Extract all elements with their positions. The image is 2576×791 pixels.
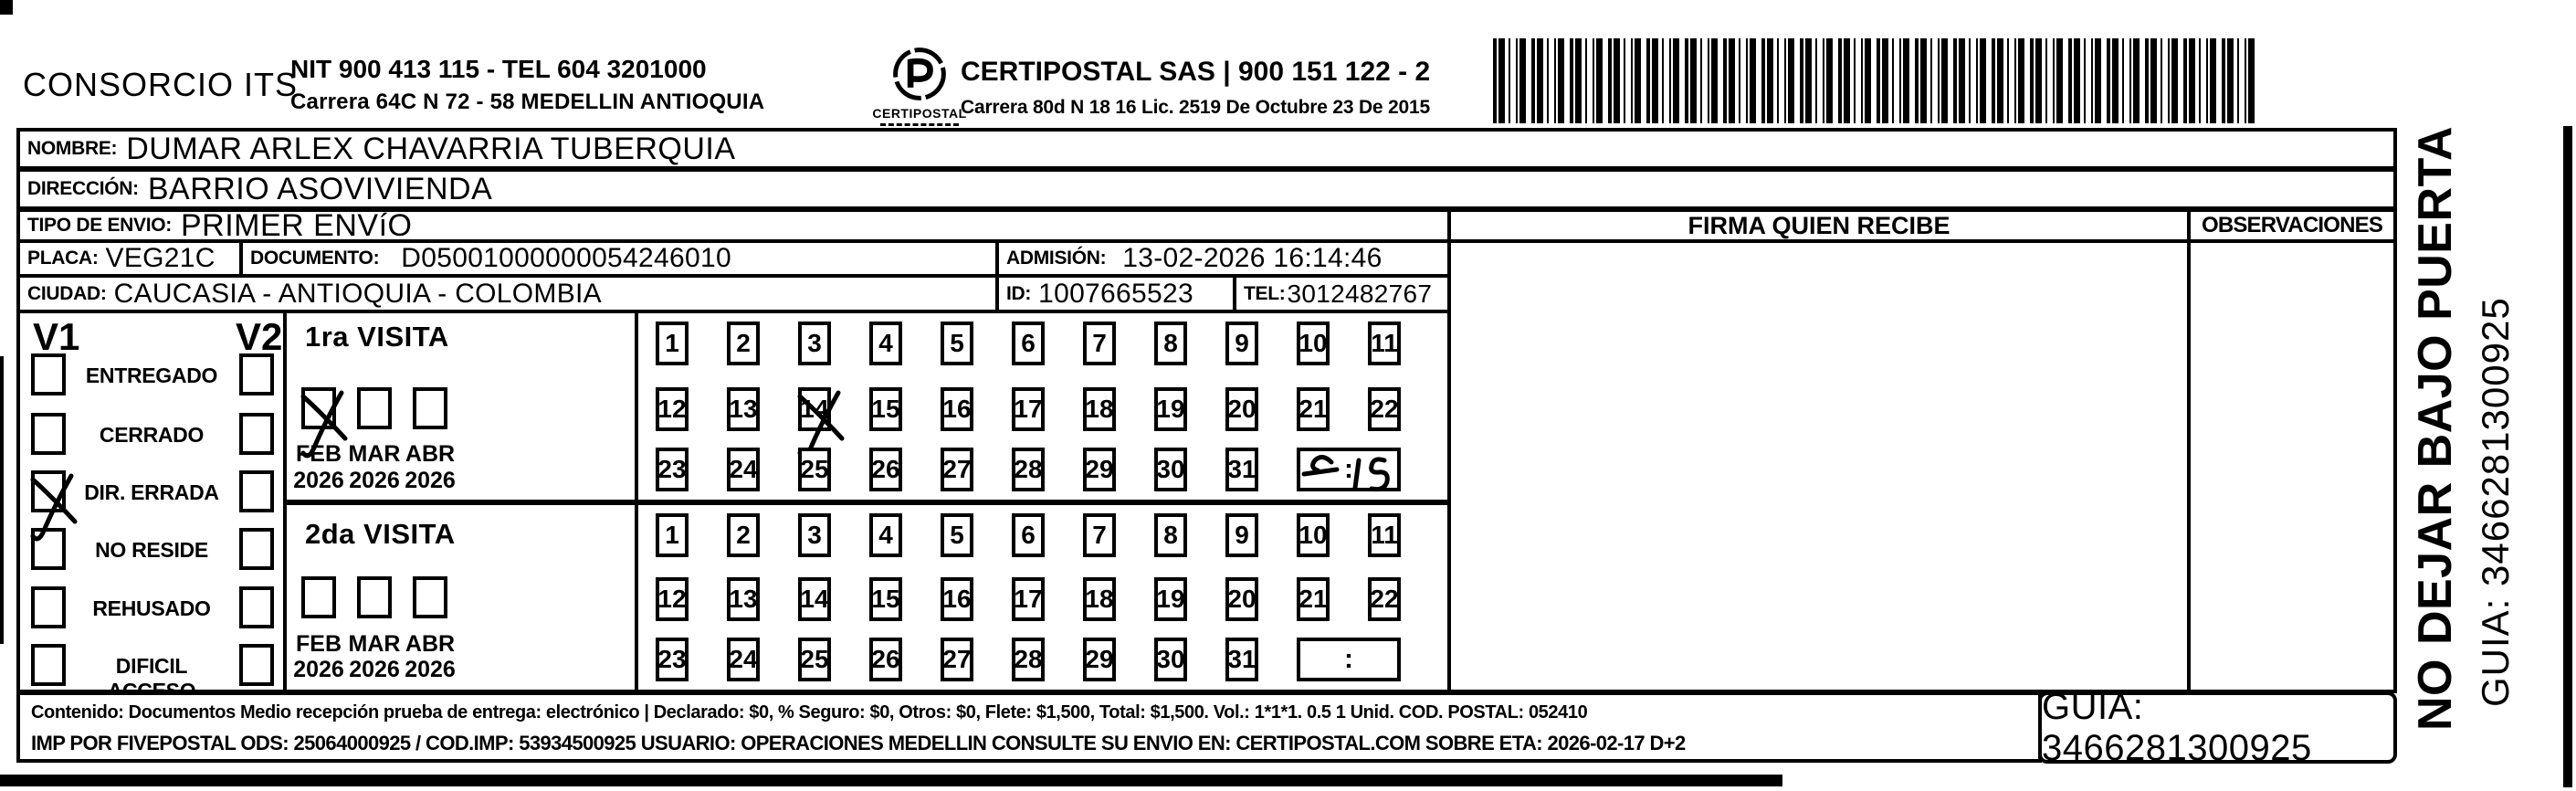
documento-label: DOCUMENTO: <box>250 248 379 269</box>
day-box-11: 11 <box>1368 322 1401 365</box>
month-checkbox-mar-2026 <box>357 387 392 429</box>
month-label: MAR <box>345 441 404 468</box>
day-box-13: 13 <box>727 577 760 621</box>
month-label: FEB <box>289 441 348 468</box>
status-label-cerrado: CERRADO <box>71 423 232 448</box>
logo-underline <box>880 123 959 126</box>
footer-imp-line: IMP POR FIVEPOSTAL ODS: 25064000925 / CO… <box>31 732 1686 755</box>
day-box-28: 28 <box>1012 448 1045 491</box>
v2-checkbox-dir-errada <box>239 470 274 512</box>
v1-checkbox-dificil-acceso <box>31 644 66 686</box>
handwritten-time <box>1300 451 1404 495</box>
day-box-27: 27 <box>941 448 973 491</box>
day-box-4: 4 <box>869 513 902 557</box>
status-label-entregado: ENTREGADO <box>71 364 232 388</box>
day-box-8: 8 <box>1154 322 1187 365</box>
day-box-31: 31 <box>1225 638 1258 681</box>
side-guia-text: GUIA: 3466281300925 <box>2467 137 2524 731</box>
certipostal-license-line: Carrera 80d N 18 16 Lic. 2519 De Octubre… <box>961 97 1430 119</box>
consorcio-nit-line: NIT 900 413 115 - TEL 604 3201000 <box>290 55 707 84</box>
month-checkbox-abr-2026 <box>413 576 447 618</box>
time-box: : <box>1297 638 1401 681</box>
day-box-21: 21 <box>1297 387 1330 431</box>
day-box-24: 24 <box>727 448 760 491</box>
visit-title: 1ra VISITA <box>305 321 449 353</box>
day-box-31: 31 <box>1225 448 1258 491</box>
certipostal-name-line: CERTIPOSTAL SAS | 900 151 122 - 2 <box>961 57 1430 88</box>
cell-tel: TEL: 3012482767 <box>1233 274 1451 313</box>
brand-name: CONSORCIO ITS <box>23 66 298 104</box>
no-dejar-bajo-puerta-text: NO DEJAR BAJO PUERTA <box>2403 137 2467 731</box>
day-box-2: 2 <box>727 322 760 365</box>
v2-column-header: V2 <box>236 315 282 359</box>
scan-artifact-right-bar <box>2563 126 2572 787</box>
day-box-20: 20 <box>1225 577 1258 621</box>
guia-number-box: GUIA: 3466281300925 <box>2038 691 2397 764</box>
delivery-slip-scan: CONSORCIO ITS NIT 900 413 115 - TEL 604 … <box>0 0 2576 791</box>
firma-signature-area <box>1447 239 2191 693</box>
month-label: MAR <box>345 631 404 658</box>
calendar-row: 1213141516171819202122 <box>656 387 1401 431</box>
firma-quien-recibe-header: FIRMA QUIEN RECIBE <box>1447 208 2191 243</box>
day-box-1: 1 <box>656 513 689 557</box>
observaciones-area <box>2187 239 2397 693</box>
day-box-15: 15 <box>869 577 902 621</box>
day-box-17: 17 <box>1012 387 1045 431</box>
calendar-row: 1234567891011 <box>656 322 1401 365</box>
direccion-value: BARRIO ASOVIVIENDA <box>148 172 492 207</box>
month-checkbox-mar-2026 <box>357 576 392 618</box>
day-box-5: 5 <box>941 513 973 557</box>
row-nombre: NOMBRE: DUMAR ARLEX CHAVARRIA TUBERQUIA <box>16 128 2397 170</box>
year-label: 2026 <box>345 657 404 683</box>
barcode-icon <box>1493 38 2255 123</box>
day-box-25: 25 <box>798 638 831 681</box>
day-box-13: 13 <box>727 387 760 431</box>
side-rotated-text: NO DEJAR BAJO PUERTA GUIA: 3466281300925 <box>2403 137 2550 731</box>
year-label: 2026 <box>401 468 459 494</box>
day-box-15: 15 <box>869 387 902 431</box>
day-box-10: 10 <box>1297 322 1330 365</box>
v2-checkbox-dificil-acceso <box>239 644 274 686</box>
cell-id: ID: 1007665523 <box>995 274 1236 313</box>
year-label: 2026 <box>289 657 348 683</box>
day-box-2: 2 <box>727 513 760 557</box>
day-box-12: 12 <box>656 577 689 621</box>
day-box-19: 19 <box>1154 387 1187 431</box>
v1-column-header: V1 <box>33 315 79 359</box>
visit-status-box: V1 V2 ENTREGADOCERRADODIR. ERRADANO RESI… <box>16 310 287 693</box>
month-label: FEB <box>289 631 348 658</box>
second-visit-box: 2da VISITA FEB2026MAR2026ABR2026 <box>283 501 638 693</box>
direccion-label: DIRECCIÓN: <box>27 178 139 200</box>
v1-checkbox-no-reside <box>31 528 66 570</box>
day-box-3: 3 <box>798 322 831 365</box>
ciudad-value: CAUCASIA - ANTIOQUIA - COLOMBIA <box>114 279 602 310</box>
id-value: 1007665523 <box>1038 279 1193 310</box>
footer-content-cell: Contenido: Documentos Medio recepción pr… <box>16 691 2042 763</box>
day-box-30: 30 <box>1154 448 1187 491</box>
ciudad-label: CIUDAD: <box>27 283 107 305</box>
status-label-dir-errada: DIR. ERRADA <box>71 480 232 505</box>
observaciones-header: OBSERVACIONES <box>2187 208 2397 243</box>
tipo-envio-label: TIPO DE ENVIO: <box>27 215 172 237</box>
year-label: 2026 <box>401 657 459 683</box>
calendar-row: 232425262728293031: <box>656 448 1401 491</box>
day-box-26: 26 <box>869 638 902 681</box>
footer-contenido-line: Contenido: Documentos Medio recepción pr… <box>31 702 1587 723</box>
logo-caption: CERTIPOSTAL <box>869 106 970 121</box>
day-box-1: 1 <box>656 322 689 365</box>
day-box-28: 28 <box>1012 638 1045 681</box>
v1-checkbox-cerrado <box>31 413 66 455</box>
cell-ciudad: CIUDAD: CAUCASIA - ANTIOQUIA - COLOMBIA <box>16 274 999 313</box>
day-box-7: 7 <box>1083 513 1116 557</box>
tel-value: 3012482767 <box>1287 279 1432 309</box>
day-box-29: 29 <box>1083 638 1116 681</box>
row-tipo-envio: TIPO DE ENVIO: PRIMER ENVíO <box>16 208 1451 243</box>
admision-value: 13-02-2026 16:14:46 <box>1122 243 1382 274</box>
documento-value: D05001000000054246010 <box>401 243 731 274</box>
day-box-6: 6 <box>1012 322 1045 365</box>
day-box-14: 14 <box>798 387 831 431</box>
id-label: ID: <box>1006 283 1031 305</box>
v2-checkbox-entregado <box>239 353 274 395</box>
v1-checkbox-dir-errada <box>31 470 66 512</box>
day-box-5: 5 <box>941 322 973 365</box>
year-label: 2026 <box>345 468 404 494</box>
v1-checkbox-rehusado <box>31 586 66 628</box>
day-box-11: 11 <box>1368 513 1401 557</box>
day-box-6: 6 <box>1012 513 1045 557</box>
first-visit-box: 1ra VISITA FEB2026MAR2026ABR2026 <box>283 310 638 503</box>
time-colon: : <box>1344 644 1353 675</box>
certipostal-logo-icon <box>887 44 952 104</box>
nombre-value: DUMAR ARLEX CHAVARRIA TUBERQUIA <box>126 132 735 167</box>
day-box-22: 22 <box>1368 577 1401 621</box>
visit-title: 2da VISITA <box>305 518 456 551</box>
calendar-row: 1213141516171819202122 <box>656 577 1401 621</box>
month-checkbox-feb-2026 <box>301 387 336 429</box>
scan-artifact-left-line <box>0 356 4 644</box>
day-box-3: 3 <box>798 513 831 557</box>
calendar-row: 1234567891011 <box>656 513 1401 557</box>
row-direccion: DIRECCIÓN: BARRIO ASOVIVIENDA <box>16 168 2397 210</box>
day-box-18: 18 <box>1083 387 1116 431</box>
status-label-rehusado: REHUSADO <box>71 596 232 621</box>
time-box-handwritten: : <box>1297 448 1401 491</box>
day-box-22: 22 <box>1368 387 1401 431</box>
day-box-30: 30 <box>1154 638 1187 681</box>
consorcio-address-line: Carrera 64C N 72 - 58 MEDELLIN ANTIOQUIA <box>290 90 764 115</box>
scan-artifact-bottom-bar <box>0 775 1782 786</box>
tel-label: TEL: <box>1244 283 1285 305</box>
year-label: 2026 <box>289 468 348 494</box>
second-visit-calendar: 1234567891011121314151617181920212223242… <box>635 501 1451 693</box>
cell-admision: ADMISIÓN: 13-02-2026 16:14:46 <box>995 239 1451 278</box>
day-box-7: 7 <box>1083 322 1116 365</box>
v1-checkbox-entregado <box>31 353 66 395</box>
day-box-19: 19 <box>1154 577 1187 621</box>
day-box-8: 8 <box>1154 513 1187 557</box>
day-box-21: 21 <box>1297 577 1330 621</box>
day-box-29: 29 <box>1083 448 1116 491</box>
day-box-26: 26 <box>869 448 902 491</box>
month-label: ABR <box>401 441 459 468</box>
month-checkbox-feb-2026 <box>301 576 336 618</box>
day-box-12: 12 <box>656 387 689 431</box>
day-box-16: 16 <box>941 387 973 431</box>
placa-value: VEG21C <box>106 243 216 274</box>
first-visit-calendar: 1234567891011121314151617181920212223242… <box>635 310 1451 503</box>
day-box-16: 16 <box>941 577 973 621</box>
placa-label: PLACA: <box>27 248 99 269</box>
day-box-14: 14 <box>798 577 831 621</box>
day-box-18: 18 <box>1083 577 1116 621</box>
nombre-label: NOMBRE: <box>27 138 117 160</box>
v2-checkbox-cerrado <box>239 413 274 455</box>
day-box-20: 20 <box>1225 387 1258 431</box>
day-box-9: 9 <box>1225 513 1258 557</box>
admision-label: ADMISIÓN: <box>1006 248 1106 269</box>
scan-artifact-corner <box>0 0 13 15</box>
calendar-row: 232425262728293031: <box>656 638 1401 681</box>
day-box-9: 9 <box>1225 322 1258 365</box>
day-box-23: 23 <box>656 448 689 491</box>
day-box-27: 27 <box>941 638 973 681</box>
day-box-4: 4 <box>869 322 902 365</box>
day-box-17: 17 <box>1012 577 1045 621</box>
v2-checkbox-rehusado <box>239 586 274 628</box>
month-checkbox-abr-2026 <box>413 387 447 429</box>
cell-placa: PLACA: VEG21C <box>16 239 243 278</box>
month-label: ABR <box>401 631 459 658</box>
status-label-no-reside: NO RESIDE <box>71 538 232 563</box>
cell-documento: DOCUMENTO: D05001000000054246010 <box>239 239 999 278</box>
day-box-24: 24 <box>727 638 760 681</box>
day-box-23: 23 <box>656 638 689 681</box>
tipo-envio-value: PRIMER ENVíO <box>181 208 412 244</box>
certipostal-logo: CERTIPOSTAL <box>869 44 970 126</box>
day-box-10: 10 <box>1297 513 1330 557</box>
day-box-25: 25 <box>798 448 831 491</box>
v2-checkbox-no-reside <box>239 528 274 570</box>
